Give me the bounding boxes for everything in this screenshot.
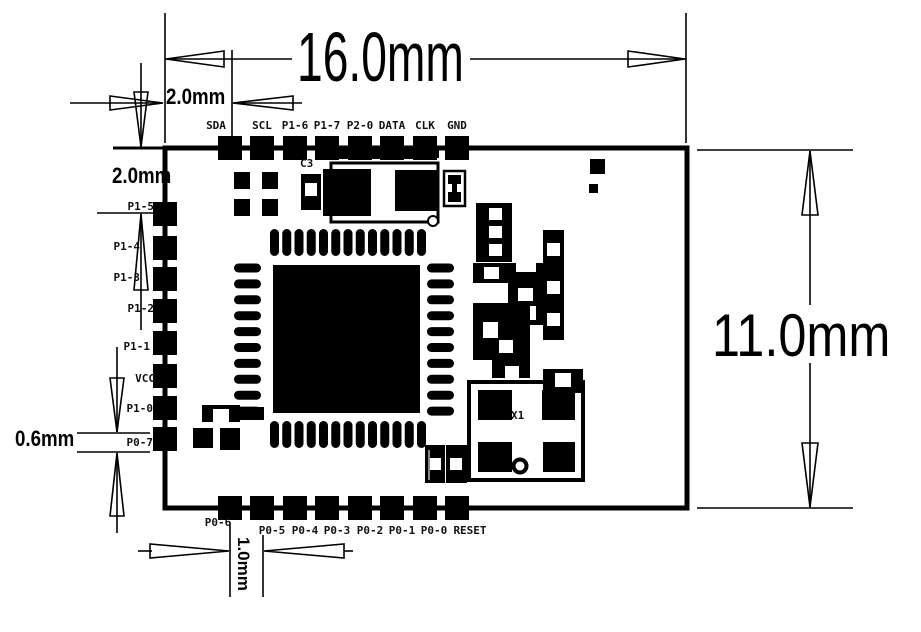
qfn-pad-top-11: [405, 229, 414, 256]
pad-top-SCL: [250, 136, 274, 160]
qfn-pad-bottom-1: [282, 421, 291, 448]
dim-pitch-label: 1.0mm: [235, 537, 252, 591]
qfn-pad-top-6: [344, 229, 353, 256]
qfn-pad-left-7: [234, 375, 261, 384]
qfn-pad-bottom-9: [380, 421, 389, 448]
pin-label-p0-7: P0-7: [127, 436, 154, 449]
pad-bottom-P0-4: [283, 496, 307, 520]
qfn-pad-bottom-0: [270, 421, 279, 448]
dim-width-label: 16.0mm: [297, 22, 464, 92]
qfn-pad-bottom-4: [319, 421, 328, 448]
qfn-pad-top-9: [380, 229, 389, 256]
pad-top-P1-7: [315, 136, 339, 160]
pin-label-clk: CLK: [415, 119, 435, 132]
qfn-pad-right-1: [427, 279, 454, 288]
qfn-pad-right-6: [427, 359, 454, 368]
qfn-pad-bottom-12: [417, 421, 426, 448]
pad-left-P1-5: [153, 202, 177, 226]
qfn-pad-top-8: [368, 229, 377, 256]
pad-bottom-P0-1: [380, 496, 404, 520]
qfn-pad-left-2: [234, 295, 261, 304]
qfn-pad-top-2: [295, 229, 304, 256]
qfn-pad-top-4: [319, 229, 328, 256]
pad-left-P1-1: [153, 331, 177, 355]
pin-label-scl: SCL: [252, 119, 272, 132]
qfn-pad-bottom-3: [307, 421, 316, 448]
pin-label-p1-4: P1-4: [114, 240, 141, 253]
pin-label-p0-1: P0-1: [389, 524, 416, 537]
crystal-x1: [469, 369, 583, 480]
capacitor-c3: [301, 174, 321, 210]
dim-pad-size-label: 0.6mm: [15, 428, 74, 450]
qfn-pad-top-10: [393, 229, 402, 256]
refdes-x1: X1: [511, 409, 524, 422]
qfn-pad-top-5: [331, 229, 340, 256]
pad-left-P1-0: [153, 396, 177, 420]
pad-bottom-P0-5: [250, 496, 274, 520]
qfn-pad-left-4: [234, 327, 261, 336]
pin-label-data: DATA: [379, 119, 406, 132]
pin-label-p1-6: P1-6: [282, 119, 309, 132]
qfn-pad-left-0: [234, 264, 261, 273]
pad-bottom-P0-2: [348, 496, 372, 520]
pad-left-P1-2: [153, 299, 177, 323]
qfn-pad-left-8: [234, 391, 261, 400]
qfn-pad-right-8: [427, 391, 454, 400]
pin-label-p1-3: P1-3: [114, 271, 141, 284]
pad-bottom-P0-3: [315, 496, 339, 520]
pin-label-gnd: GND: [447, 119, 467, 132]
qfn-pad-bottom-7: [356, 421, 365, 448]
qfn-pad-top-1: [282, 229, 291, 256]
qfn-pad-left-5: [234, 343, 261, 352]
qfn-pad-bottom-11: [405, 421, 414, 448]
pin-label-p0-3: P0-3: [324, 524, 351, 537]
pin-label-p0-5: P0-5: [259, 524, 286, 537]
qfn-pad-top-12: [417, 229, 426, 256]
dim-left-offset-label: 2.0mm: [112, 165, 171, 187]
pin-label-sda: SDA: [206, 119, 226, 132]
pin-label-p2-0: P2-0: [347, 119, 374, 132]
pin-label-p1-5: P1-5: [128, 200, 155, 213]
dim-top-offset-label: 2.0mm: [166, 86, 225, 108]
pin-label-p1-2: P1-2: [128, 302, 155, 315]
pad-left-P1-4: [153, 236, 177, 260]
pin-label-p0-6: P0-6: [205, 516, 232, 529]
pcb-dimension-drawing: 16.0mm 11.0mm 2.0mm 2.0mm 0.6mm 1.0mm SD…: [0, 0, 921, 632]
pin-label-p1-0: P1-0: [127, 402, 154, 415]
pad-top-GND: [445, 136, 469, 160]
pin-label-p1-1: P1-1: [124, 340, 151, 353]
qfn-pad-bottom-6: [344, 421, 353, 448]
pad-bottom-P0-0: [413, 496, 437, 520]
pin-label-p0-4: P0-4: [292, 524, 319, 537]
qfn-pad-bottom-5: [331, 421, 340, 448]
refdes-c3: C3: [300, 157, 313, 170]
pad-left-P1-3: [153, 267, 177, 291]
pad-left-VCC: [153, 364, 177, 388]
qfn-pad-top-0: [270, 229, 279, 256]
qfn-pad-top-3: [307, 229, 316, 256]
pad-bottom-RESET: [445, 496, 469, 520]
qfn-pad-bottom-10: [393, 421, 402, 448]
qfn-pad-right-7: [427, 375, 454, 384]
pin-label-vcc: VCC: [135, 372, 155, 385]
pad-top-DATA: [380, 136, 404, 160]
pin-label-p0-2: P0-2: [357, 524, 384, 537]
qfn-ic-body: [273, 265, 420, 413]
qfn-pad-bottom-2: [295, 421, 304, 448]
pin-label-p0-0: P0-0: [421, 524, 448, 537]
pad-top-SDA: [218, 136, 242, 160]
qfn-pad-right-4: [427, 327, 454, 336]
qfn-pad-right-5: [427, 343, 454, 352]
qfn-pad-left-6: [234, 359, 261, 368]
qfn-pad-right-9: [427, 407, 454, 416]
pin-label-reset: RESET: [453, 524, 486, 537]
qfn-pad-left-1: [234, 279, 261, 288]
qfn-pad-right-3: [427, 311, 454, 320]
qfn-pad-left-3: [234, 311, 261, 320]
dim-height-label: 11.0mm: [712, 306, 890, 366]
qfn-pad-right-0: [427, 264, 454, 273]
pad-left-P0-7: [153, 427, 177, 451]
qfn-pad-bottom-8: [368, 421, 377, 448]
qfn-pad-right-2: [427, 295, 454, 304]
pin-label-p1-7: P1-7: [314, 119, 341, 132]
qfn-pad-top-7: [356, 229, 365, 256]
